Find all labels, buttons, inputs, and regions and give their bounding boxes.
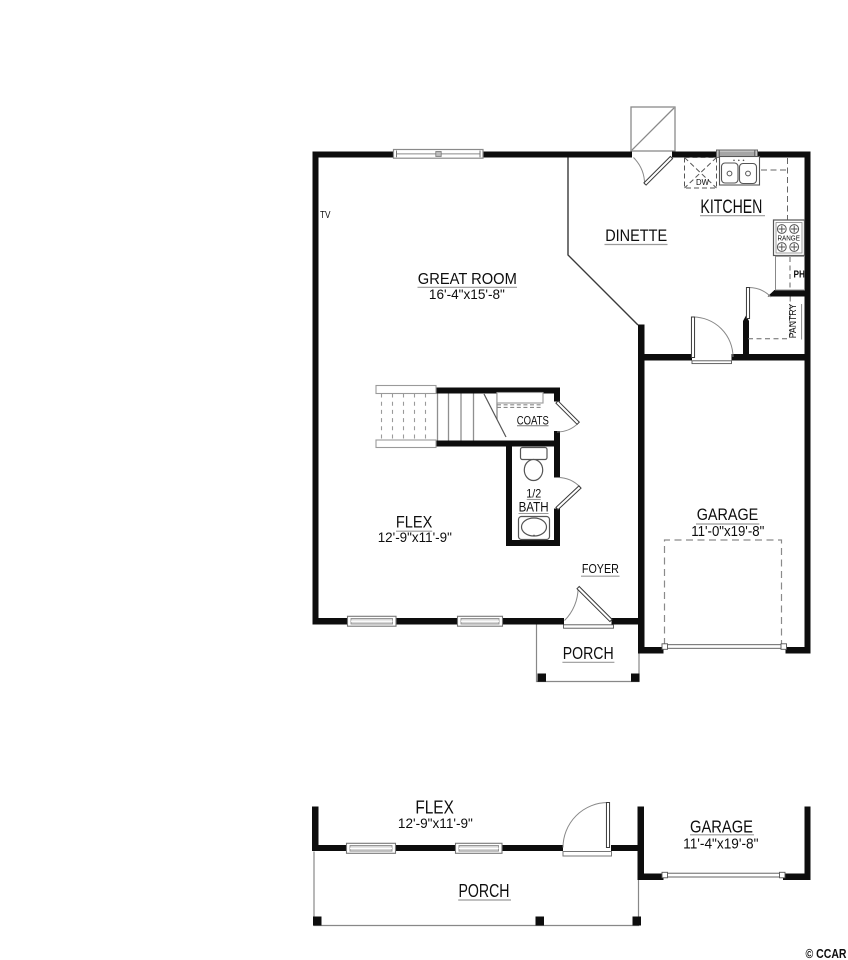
svg-text:16'-4"x15'-8": 16'-4"x15'-8" — [429, 287, 505, 302]
svg-text:GREAT ROOM: GREAT ROOM — [418, 271, 517, 288]
svg-text:PORCH: PORCH — [459, 881, 510, 901]
svg-text:12'-9"x11'-9": 12'-9"x11'-9" — [398, 816, 473, 831]
svg-text:PH: PH — [794, 270, 806, 281]
svg-text:TV: TV — [320, 210, 331, 221]
svg-text:11'-0"x19'-8": 11'-0"x19'-8" — [691, 524, 764, 540]
svg-text:DW: DW — [696, 177, 709, 187]
svg-text:12'-9"x11'-9": 12'-9"x11'-9" — [378, 530, 452, 545]
svg-text:© CCAR: © CCAR — [806, 947, 847, 960]
svg-text:FLEX: FLEX — [415, 798, 454, 818]
svg-text:RANGE: RANGE — [777, 234, 800, 243]
svg-text:GARAGE: GARAGE — [690, 817, 753, 837]
svg-text:KITCHEN: KITCHEN — [700, 197, 762, 218]
svg-text:PANTRY: PANTRY — [787, 304, 799, 339]
svg-text:FOYER: FOYER — [582, 562, 619, 576]
svg-text:DINETTE: DINETTE — [605, 227, 667, 245]
svg-text:PORCH: PORCH — [563, 643, 614, 663]
svg-text:BATH: BATH — [519, 498, 549, 514]
svg-text:GARAGE: GARAGE — [697, 506, 759, 524]
svg-text:11'-4"x19'-8": 11'-4"x19'-8" — [683, 836, 758, 853]
